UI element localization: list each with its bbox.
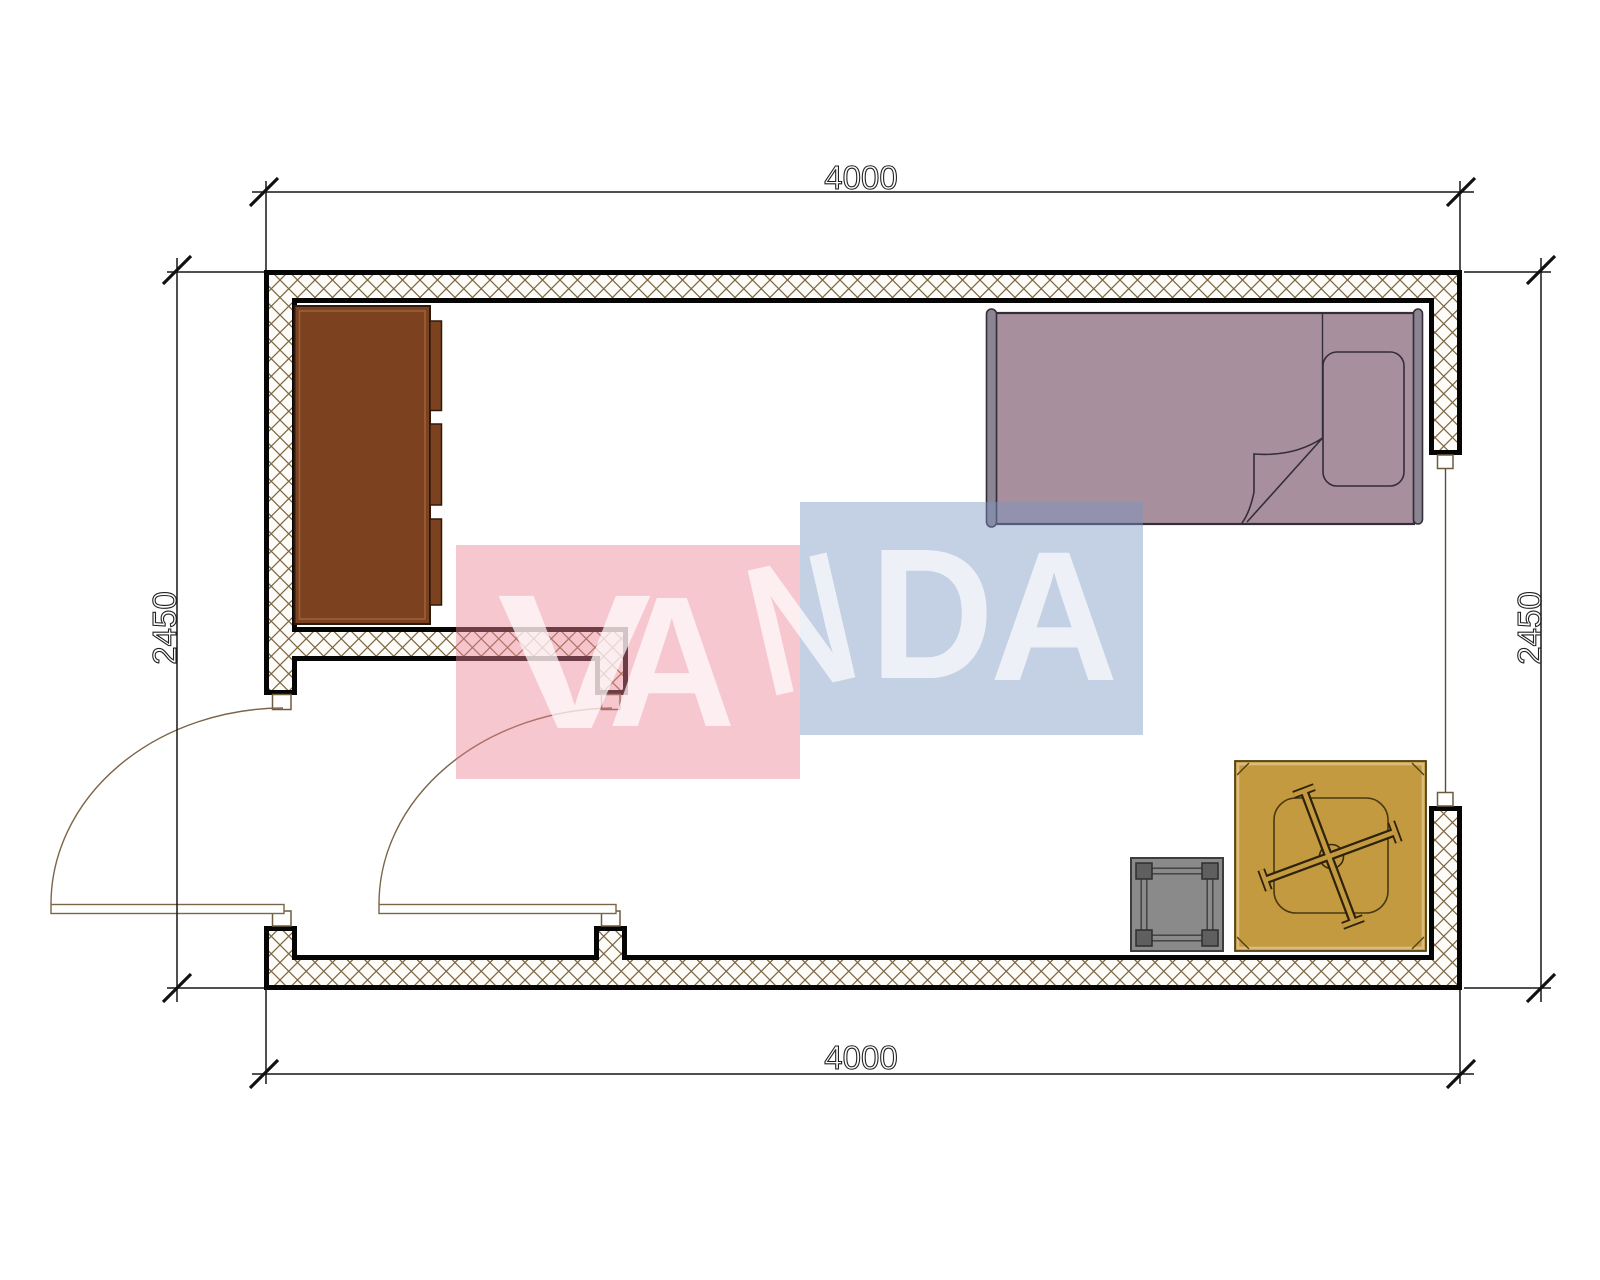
svg-text:A: A bbox=[990, 514, 1118, 720]
svg-text:A: A bbox=[608, 559, 736, 766]
svg-text:D: D bbox=[870, 510, 994, 718]
svg-text:4000: 4000 bbox=[824, 159, 897, 196]
svg-text:4000: 4000 bbox=[824, 1039, 897, 1076]
svg-text:2450: 2450 bbox=[1511, 591, 1548, 664]
svg-text:2450: 2450 bbox=[146, 591, 183, 664]
